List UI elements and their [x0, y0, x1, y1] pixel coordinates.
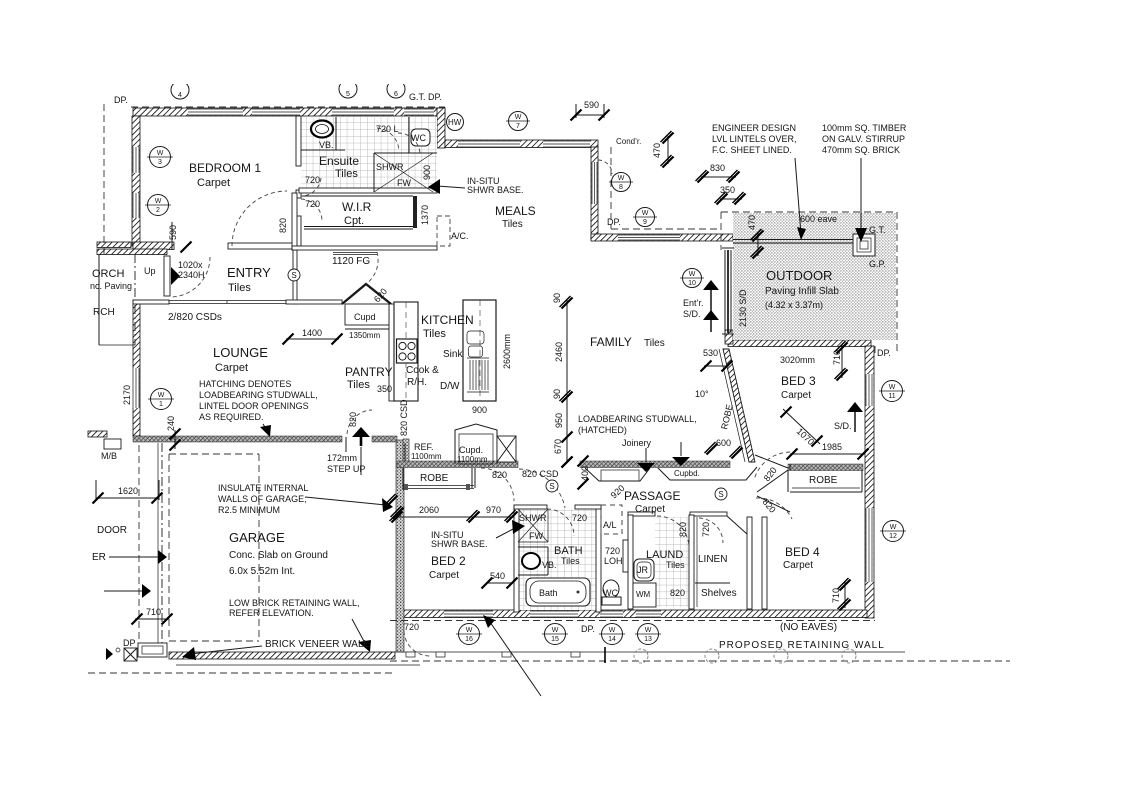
- svg-text:VB.: VB.: [542, 560, 557, 570]
- svg-text:HATCHING DENOTES: HATCHING DENOTES: [199, 379, 291, 389]
- svg-text:2130 S/D: 2130 S/D: [738, 289, 748, 327]
- svg-text:710: 710: [831, 588, 841, 603]
- svg-text:100mm SQ. TIMBER: 100mm SQ. TIMBER: [822, 123, 907, 133]
- svg-text:Cond’r.: Cond’r.: [616, 137, 641, 146]
- svg-text:2/820 CSDs: 2/820 CSDs: [168, 312, 222, 323]
- svg-text:BED 2: BED 2: [431, 554, 466, 568]
- svg-text:HW: HW: [448, 118, 462, 127]
- svg-text:W: W: [642, 210, 649, 217]
- svg-text:820: 820: [492, 470, 507, 480]
- svg-text:670: 670: [553, 439, 563, 454]
- svg-text:Conc. Slab on Ground: Conc. Slab on Ground: [229, 550, 328, 561]
- svg-text:ER: ER: [92, 552, 106, 563]
- svg-text:Tiles: Tiles: [423, 328, 446, 340]
- svg-text:(HATCHED): (HATCHED): [578, 425, 627, 435]
- svg-text:W: W: [890, 524, 897, 531]
- svg-text:G.T.: G.T.: [869, 225, 886, 235]
- svg-text:1350mm: 1350mm: [349, 331, 380, 340]
- svg-text:2: 2: [156, 207, 160, 214]
- svg-text:VB.: VB.: [319, 140, 334, 150]
- svg-text:W: W: [645, 627, 652, 634]
- svg-text:720 L: 720 L: [376, 124, 399, 134]
- svg-text:2460: 2460: [554, 342, 564, 362]
- svg-text:820: 820: [678, 522, 688, 537]
- svg-text:590: 590: [584, 100, 599, 110]
- svg-text:RCH: RCH: [93, 307, 115, 318]
- svg-text:FW: FW: [529, 531, 543, 541]
- svg-text:M/B: M/B: [101, 451, 117, 461]
- svg-text:Carpet: Carpet: [781, 390, 811, 401]
- svg-text:WC: WC: [411, 133, 426, 143]
- svg-text:LOH: LOH: [604, 556, 623, 566]
- svg-text:172mm: 172mm: [327, 453, 357, 463]
- svg-text:350: 350: [720, 185, 735, 195]
- svg-text:Carpet: Carpet: [197, 177, 230, 189]
- svg-text:AS REQUIRED.: AS REQUIRED.: [199, 412, 264, 422]
- svg-text:Up: Up: [144, 266, 156, 276]
- svg-text:820: 820: [670, 588, 685, 598]
- svg-text:Ent’r.: Ent’r.: [683, 298, 704, 308]
- svg-text:Cook &: Cook &: [406, 365, 439, 376]
- svg-text:W: W: [466, 627, 473, 634]
- svg-text:470mm SQ. BRICK: 470mm SQ. BRICK: [822, 145, 900, 155]
- svg-text:1400: 1400: [302, 328, 322, 338]
- svg-text:3020mm: 3020mm: [780, 355, 815, 365]
- svg-text:BEDROOM 1: BEDROOM 1: [189, 161, 261, 175]
- svg-text:DP: DP: [123, 638, 136, 648]
- svg-text:Tiles: Tiles: [666, 560, 685, 570]
- svg-text:900: 900: [422, 165, 432, 180]
- svg-text:ROBE: ROBE: [809, 475, 838, 486]
- svg-text:FAMILY: FAMILY: [590, 335, 632, 349]
- svg-text:1100mm: 1100mm: [411, 452, 442, 461]
- svg-text:OUTDOOR: OUTDOOR: [766, 268, 832, 283]
- svg-text:LOADBEARING STUDWALL,: LOADBEARING STUDWALL,: [578, 414, 697, 424]
- svg-text:GARAGE: GARAGE: [229, 530, 285, 545]
- svg-text:7: 7: [516, 123, 520, 130]
- svg-text:710: 710: [832, 350, 842, 365]
- svg-text:1120 FG: 1120 FG: [332, 256, 370, 267]
- svg-text:820 CSD: 820 CSD: [522, 469, 559, 479]
- svg-text:Paving Infill Slab: Paving Infill Slab: [765, 286, 839, 297]
- svg-text:DOOR: DOOR: [97, 525, 127, 536]
- svg-text:720: 720: [404, 622, 419, 632]
- svg-text:1: 1: [159, 401, 163, 408]
- svg-text:MEALS: MEALS: [495, 204, 536, 218]
- svg-text:470: 470: [747, 215, 757, 230]
- svg-text:S/D.: S/D.: [834, 421, 852, 431]
- svg-text:nc. Paving: nc. Paving: [90, 281, 132, 291]
- svg-text:1020x: 1020x: [178, 260, 203, 270]
- svg-text:FW: FW: [397, 178, 411, 188]
- svg-text:820 CSD: 820 CSD: [399, 399, 409, 436]
- svg-text:970: 970: [486, 505, 501, 515]
- svg-text:LOADBEARING STUDWALL,: LOADBEARING STUDWALL,: [199, 390, 318, 400]
- svg-text:ENGINEER DESIGN: ENGINEER DESIGN: [712, 123, 796, 133]
- svg-text:590: 590: [168, 225, 178, 240]
- svg-text:8: 8: [619, 184, 623, 191]
- svg-text:ENTRY: ENTRY: [227, 265, 271, 280]
- svg-text:1370: 1370: [420, 205, 430, 225]
- svg-text:720: 720: [305, 199, 320, 209]
- svg-text:BED 3: BED 3: [781, 374, 816, 388]
- svg-text:Carpet: Carpet: [429, 570, 459, 581]
- svg-text:1985: 1985: [822, 442, 842, 452]
- svg-text:90: 90: [552, 389, 562, 399]
- svg-text:W: W: [552, 627, 559, 634]
- svg-text:720: 720: [701, 522, 711, 537]
- svg-text:Tiles: Tiles: [335, 168, 358, 180]
- svg-text:F.C. SHEET LINED.: F.C. SHEET LINED.: [712, 145, 792, 155]
- svg-text:S/D.: S/D.: [683, 309, 701, 319]
- svg-text:2060: 2060: [419, 505, 439, 515]
- svg-text:S: S: [291, 271, 296, 280]
- svg-text:Tiles: Tiles: [347, 379, 370, 391]
- svg-text:SHWR: SHWR: [376, 162, 404, 172]
- svg-text:A/L: A/L: [603, 520, 617, 530]
- svg-text:Cupbd.: Cupbd.: [674, 469, 700, 478]
- svg-text:KITCHEN: KITCHEN: [421, 313, 474, 327]
- svg-text:DP.: DP.: [877, 348, 891, 358]
- svg-text:ON GALV. STIRRUP: ON GALV. STIRRUP: [822, 134, 905, 144]
- svg-text:SHWR BASE.: SHWR BASE.: [431, 539, 488, 549]
- svg-text:820: 820: [348, 412, 358, 427]
- svg-text:1100mm: 1100mm: [457, 455, 488, 464]
- svg-text:600 eave: 600 eave: [800, 214, 837, 224]
- svg-text:710: 710: [146, 607, 161, 617]
- svg-text:(4.32 x 3.37m): (4.32 x 3.37m): [765, 300, 823, 310]
- svg-text:600: 600: [716, 438, 731, 448]
- svg-text:Carpet: Carpet: [635, 504, 665, 515]
- svg-text:W: W: [889, 384, 896, 391]
- svg-text:530: 530: [703, 348, 718, 358]
- svg-text:Cpt.: Cpt.: [344, 215, 364, 227]
- svg-text:G.P.: G.P.: [869, 259, 886, 269]
- svg-text:R2.5 MINIMUM: R2.5 MINIMUM: [218, 505, 280, 515]
- svg-text:WC: WC: [603, 588, 618, 598]
- svg-text:W: W: [689, 271, 696, 278]
- svg-text:D/W: D/W: [440, 381, 460, 392]
- svg-text:G.T. DP.: G.T. DP.: [409, 92, 442, 102]
- svg-text:Tiles: Tiles: [228, 282, 251, 294]
- svg-text:W: W: [618, 175, 625, 182]
- svg-text:900: 900: [472, 405, 487, 415]
- svg-text:STEP UP: STEP UP: [327, 464, 365, 474]
- svg-text:S: S: [718, 490, 723, 499]
- svg-text:830: 830: [710, 163, 725, 173]
- svg-text:350: 350: [377, 384, 392, 394]
- svg-text:2340H: 2340H: [178, 270, 205, 280]
- svg-text:LINEN: LINEN: [698, 554, 727, 565]
- svg-text:400: 400: [580, 466, 590, 481]
- svg-text:REF.: REF.: [414, 442, 434, 452]
- svg-text:720: 720: [572, 513, 587, 523]
- svg-text:Cupd: Cupd: [354, 312, 376, 322]
- svg-text:1620: 1620: [118, 486, 138, 496]
- svg-text:240: 240: [166, 416, 176, 431]
- svg-text:9: 9: [643, 219, 647, 226]
- svg-text:470: 470: [652, 143, 662, 158]
- svg-text:14: 14: [608, 636, 616, 643]
- svg-text:JR: JR: [637, 565, 649, 575]
- svg-text:W: W: [158, 392, 165, 399]
- svg-text:820: 820: [278, 218, 288, 233]
- svg-text:W: W: [515, 114, 522, 121]
- svg-text:REFER ELEVATION.: REFER ELEVATION.: [229, 608, 314, 618]
- svg-text:Ensuite: Ensuite: [319, 154, 359, 168]
- svg-text:W: W: [609, 627, 616, 634]
- svg-text:Cupd.: Cupd.: [459, 445, 483, 455]
- svg-text:12: 12: [889, 533, 897, 540]
- svg-text:S: S: [549, 482, 554, 491]
- svg-text:11: 11: [888, 393, 895, 400]
- svg-text:540: 540: [490, 571, 505, 581]
- svg-text:ROBE: ROBE: [420, 473, 449, 484]
- svg-text:BED 4: BED 4: [785, 545, 820, 559]
- svg-text:A/C.: A/C.: [451, 231, 469, 241]
- svg-text:W.I.R: W.I.R: [342, 200, 372, 214]
- svg-text:Tiles: Tiles: [644, 338, 665, 349]
- svg-text:Sink: Sink: [443, 349, 463, 360]
- svg-text:Tiles: Tiles: [561, 556, 580, 566]
- svg-text:Shelves: Shelves: [701, 588, 737, 599]
- svg-text:PASSAGE: PASSAGE: [624, 489, 680, 503]
- svg-text:(NO EAVES): (NO EAVES): [780, 622, 837, 633]
- svg-text:LOW BRICK RETAINING WALL,: LOW BRICK RETAINING WALL,: [229, 598, 360, 608]
- svg-text:SHWR BASE.: SHWR BASE.: [467, 185, 524, 195]
- svg-text:720: 720: [605, 546, 620, 556]
- svg-text:16: 16: [465, 636, 473, 643]
- svg-text:Carpet: Carpet: [783, 560, 813, 571]
- svg-text:90: 90: [552, 293, 562, 303]
- svg-text:Joinery: Joinery: [622, 438, 652, 448]
- svg-text:LOUNGE: LOUNGE: [213, 345, 268, 360]
- svg-text:ORCH: ORCH: [92, 268, 124, 280]
- svg-text:R/H.: R/H.: [407, 377, 427, 388]
- svg-text:PANTRY: PANTRY: [345, 365, 393, 379]
- svg-text:W: W: [155, 198, 162, 205]
- svg-text:BRICK VENEER WALL: BRICK VENEER WALL: [265, 639, 370, 650]
- svg-text:INSULATE INTERNAL: INSULATE INTERNAL: [218, 483, 308, 493]
- svg-text:5: 5: [346, 91, 350, 98]
- svg-text:PROPOSED RETAINING WALL: PROPOSED RETAINING WALL: [719, 640, 885, 651]
- svg-text:LINTEL DOOR OPENINGS: LINTEL DOOR OPENINGS: [199, 401, 309, 411]
- svg-text:Bath: Bath: [539, 588, 558, 598]
- svg-text:4: 4: [178, 92, 182, 99]
- svg-text:DP.: DP.: [114, 95, 128, 105]
- svg-text:W: W: [157, 150, 164, 157]
- svg-text:10°: 10°: [695, 389, 709, 399]
- svg-text:2600mm: 2600mm: [502, 334, 512, 369]
- svg-text:DP.: DP.: [581, 624, 595, 634]
- svg-text:3: 3: [158, 159, 162, 166]
- svg-text:Carpet: Carpet: [215, 362, 248, 374]
- svg-text:Tiles: Tiles: [502, 219, 523, 230]
- svg-text:15: 15: [551, 636, 559, 643]
- svg-text:DP.: DP.: [607, 217, 621, 227]
- svg-text:6: 6: [394, 91, 398, 98]
- svg-text:720: 720: [305, 175, 320, 185]
- svg-text:13: 13: [644, 636, 652, 643]
- svg-text:WALLS OF GARAGE,: WALLS OF GARAGE,: [218, 494, 307, 504]
- svg-text:WM: WM: [636, 590, 651, 599]
- svg-text:10: 10: [688, 280, 696, 287]
- svg-text:SHWR: SHWR: [519, 513, 547, 523]
- svg-text:2170: 2170: [122, 385, 132, 405]
- svg-text:950: 950: [554, 413, 564, 428]
- svg-text:6.0x 5.52m Int.: 6.0x 5.52m Int.: [229, 566, 295, 577]
- svg-text:LVL LINTELS OVER,: LVL LINTELS OVER,: [712, 134, 797, 144]
